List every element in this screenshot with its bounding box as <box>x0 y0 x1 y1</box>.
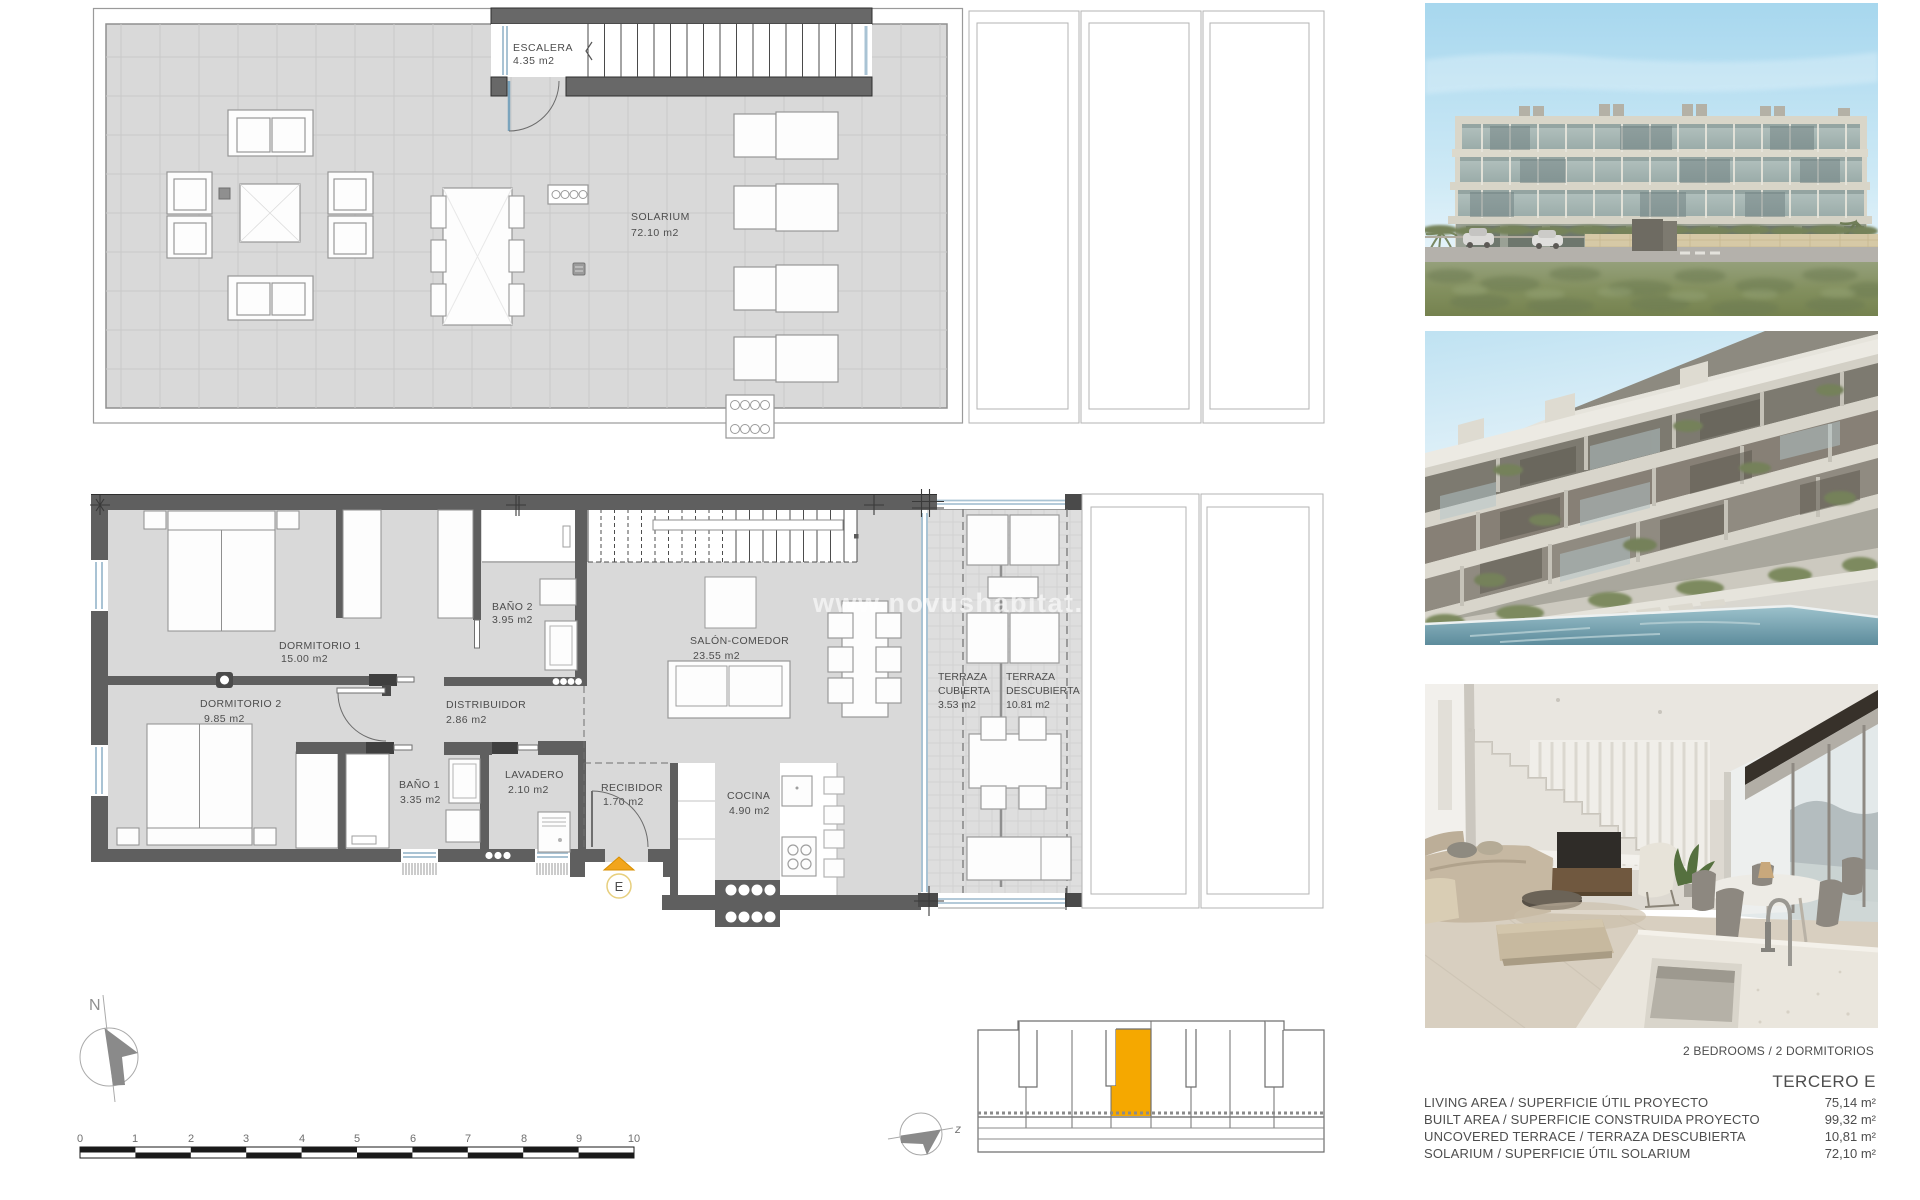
svg-text:TERRAZA: TERRAZA <box>938 671 987 683</box>
svg-text:9: 9 <box>576 1133 582 1145</box>
svg-text:0: 0 <box>77 1133 83 1145</box>
svg-text:E: E <box>615 879 624 894</box>
svg-text:2.86 m2: 2.86 m2 <box>446 714 487 726</box>
svg-text:6: 6 <box>410 1133 416 1145</box>
svg-text:9.85 m2: 9.85 m2 <box>204 713 245 725</box>
svg-text:DORMITORIO 2: DORMITORIO 2 <box>200 698 282 710</box>
svg-text:10,81 m²: 10,81 m² <box>1825 1129 1877 1144</box>
svg-text:SOLARIUM / SUPERFICIE ÚTIL SOL: SOLARIUM / SUPERFICIE ÚTIL SOLARIUM <box>1424 1146 1691 1161</box>
svg-text:DESCUBIERTA: DESCUBIERTA <box>1006 685 1080 697</box>
svg-text:TERRAZA: TERRAZA <box>1006 671 1055 683</box>
svg-text:5: 5 <box>354 1133 360 1145</box>
svg-text:BUILT AREA / SUPERFICIE CONSTR: BUILT AREA / SUPERFICIE CONSTRUIDA PROYE… <box>1424 1112 1760 1127</box>
svg-text:99,32 m²: 99,32 m² <box>1825 1112 1877 1127</box>
svg-text:DISTRIBUIDOR: DISTRIBUIDOR <box>446 699 526 711</box>
svg-text:3: 3 <box>243 1133 249 1145</box>
svg-text:COCINA: COCINA <box>727 790 770 802</box>
svg-text:3.95 m2: 3.95 m2 <box>492 614 533 626</box>
svg-text:72,10 m²: 72,10 m² <box>1825 1146 1877 1161</box>
svg-text:4: 4 <box>299 1133 305 1145</box>
svg-text:3.35 m2: 3.35 m2 <box>400 794 441 806</box>
svg-text:ESCALERA: ESCALERA <box>513 42 573 54</box>
svg-text:SOLARIUM: SOLARIUM <box>631 211 690 223</box>
svg-text:75,14 m²: 75,14 m² <box>1825 1095 1877 1110</box>
svg-text:BAÑO 2: BAÑO 2 <box>492 600 533 613</box>
svg-text:2: 2 <box>188 1133 194 1145</box>
svg-text:8: 8 <box>521 1133 527 1145</box>
svg-text:SALÓN-COMEDOR: SALÓN-COMEDOR <box>690 634 789 647</box>
svg-text:RECIBIDOR: RECIBIDOR <box>601 782 663 794</box>
svg-text:3.53 m2: 3.53 m2 <box>938 699 976 711</box>
svg-text:10: 10 <box>628 1133 640 1145</box>
svg-text:BAÑO 1: BAÑO 1 <box>399 778 440 791</box>
svg-text:4.35 m2: 4.35 m2 <box>513 55 554 67</box>
svg-text:1: 1 <box>132 1133 138 1145</box>
svg-text:LAVADERO: LAVADERO <box>505 769 564 781</box>
svg-text:z: z <box>954 1122 961 1136</box>
svg-text:DORMITORIO 1: DORMITORIO 1 <box>279 640 361 652</box>
svg-text:N: N <box>89 997 101 1014</box>
svg-text:UNCOVERED TERRACE / TERRAZA DE: UNCOVERED TERRACE / TERRAZA DESCUBIERTA <box>1424 1129 1746 1144</box>
svg-text:CUBIERTA: CUBIERTA <box>938 685 990 697</box>
svg-text:1.70 m2: 1.70 m2 <box>603 796 644 808</box>
svg-text:72.10 m2: 72.10 m2 <box>631 227 679 239</box>
svg-text:2.10 m2: 2.10 m2 <box>508 784 549 796</box>
svg-text:15.00 m2: 15.00 m2 <box>281 653 328 665</box>
svg-text:10.81 m2: 10.81 m2 <box>1006 699 1050 711</box>
svg-text:www.novushabitat.es: www.novushabitat.es <box>812 588 1117 618</box>
svg-text:LIVING AREA / SUPERFICIE ÚTIL: LIVING AREA / SUPERFICIE ÚTIL PROYECTO <box>1424 1095 1708 1110</box>
svg-text:2 BEDROOMS / 2 DORMITORIOS: 2 BEDROOMS / 2 DORMITORIOS <box>1683 1044 1874 1058</box>
svg-text:4.90 m2: 4.90 m2 <box>729 805 770 817</box>
svg-text:7: 7 <box>465 1133 471 1145</box>
svg-text:TERCERO E: TERCERO E <box>1772 1072 1876 1091</box>
svg-text:23.55 m2: 23.55 m2 <box>693 650 740 662</box>
